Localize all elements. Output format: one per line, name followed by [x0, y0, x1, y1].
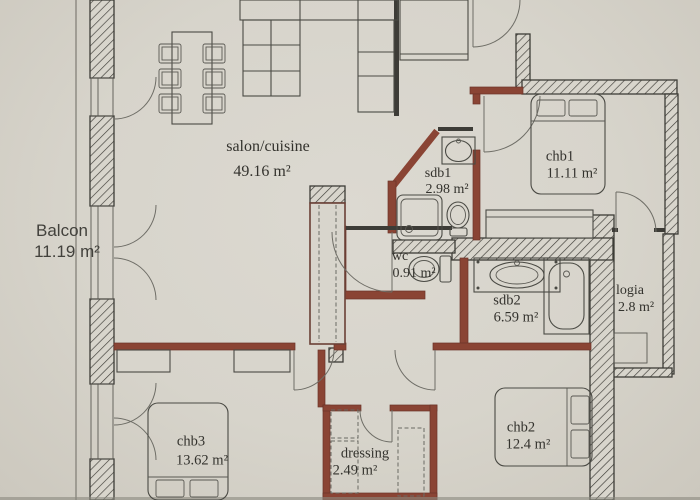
kitchen-counter-icon — [240, 0, 398, 20]
wall-left-pier2 — [90, 116, 114, 206]
logia-door-arc — [616, 192, 656, 232]
wall-chb3-top — [114, 343, 295, 350]
bathtub-icon — [544, 258, 589, 334]
window-frame-salon1 — [91, 78, 113, 116]
wall-left-pier1 — [90, 0, 114, 78]
duct-column — [310, 203, 345, 344]
shelf-icon — [331, 410, 358, 438]
window-frame-chb3 — [91, 384, 113, 459]
sdb1-area: 2.98 m² — [425, 182, 468, 198]
balcon-area: 11.19 m² — [34, 242, 100, 262]
kitchen-counter-icon — [400, 0, 468, 60]
wall-logia-right — [663, 234, 674, 374]
window-swing-arc — [114, 205, 156, 247]
wc-area: 0.91 m² — [392, 266, 435, 282]
chb3-door-arc — [294, 350, 334, 390]
wall-chb1-top — [522, 80, 677, 94]
logia-area: 2.8 m² — [618, 300, 654, 316]
sdb2-area: 6.59 m² — [494, 310, 539, 327]
wall-logia-bottom — [612, 368, 672, 377]
wardrobe-icon — [117, 350, 170, 372]
balcon-label: Balcon — [36, 221, 88, 241]
wall-logia-top-l — [612, 228, 618, 232]
chb3-label: chb3 — [177, 434, 205, 451]
chb3-area: 13.62 m² — [176, 453, 228, 470]
sdb2-label: sdb2 — [493, 293, 520, 310]
wall-dressing-right — [430, 405, 437, 500]
wall-sdb2-left — [460, 258, 468, 346]
dining-set — [159, 32, 225, 124]
dressing-door-arc — [360, 410, 392, 442]
dressing-label: dressing — [341, 446, 389, 463]
chb1-door-arc — [484, 96, 540, 152]
wall-wc-bottom — [338, 291, 425, 299]
wall-left-pier3 — [90, 299, 114, 384]
wall-chb2-top — [433, 343, 591, 350]
wc-label: wc — [392, 249, 408, 265]
salon-area: 49.16 m² — [233, 163, 290, 181]
wall-dressing-left — [323, 405, 330, 500]
wall-sdb1-top — [438, 127, 473, 131]
logia-label: logia — [616, 283, 644, 299]
chb2-label: chb2 — [507, 420, 535, 437]
kitchen-counters — [240, 0, 468, 112]
wall-sdb2-top — [452, 238, 613, 260]
wall-hall-red — [388, 181, 396, 233]
salon-label: salon/cuisine — [226, 138, 310, 156]
window-swing-arc — [114, 258, 156, 300]
wall-entry-red — [470, 87, 523, 94]
wall-dressing-top-l — [323, 405, 361, 411]
floor-plan: Balcon 11.19 m² salon/cuisine 49.16 m² s… — [0, 0, 700, 500]
washbasin-icon — [442, 137, 475, 164]
floor-plan-drawing — [0, 0, 700, 500]
chb2-area: 12.4 m² — [506, 437, 551, 454]
toilet-icon — [447, 202, 469, 236]
duct-top — [310, 186, 345, 203]
sdb1-label: sdb1 — [425, 166, 451, 182]
logia-step — [614, 333, 647, 363]
double-bed-icon — [148, 403, 228, 500]
shower-icon — [397, 195, 442, 240]
chb2-door-arc — [395, 350, 435, 390]
entry-door-arc — [473, 0, 520, 47]
wall-sdb1-right-a — [473, 94, 480, 104]
window-swing-arc — [114, 77, 156, 119]
dressing-area: 2.49 m² — [333, 463, 378, 480]
shelf-icon — [398, 428, 424, 496]
wall-wc-top — [346, 226, 452, 230]
wall-left-pier4 — [90, 459, 114, 500]
chb1-area: 11.11 m² — [547, 166, 598, 183]
wall-right-upper — [665, 94, 678, 234]
wardrobe-icon — [486, 210, 593, 238]
chb1-label: chb1 — [546, 149, 574, 166]
washbasin-icon — [474, 258, 560, 292]
wardrobe-icon — [234, 350, 290, 372]
